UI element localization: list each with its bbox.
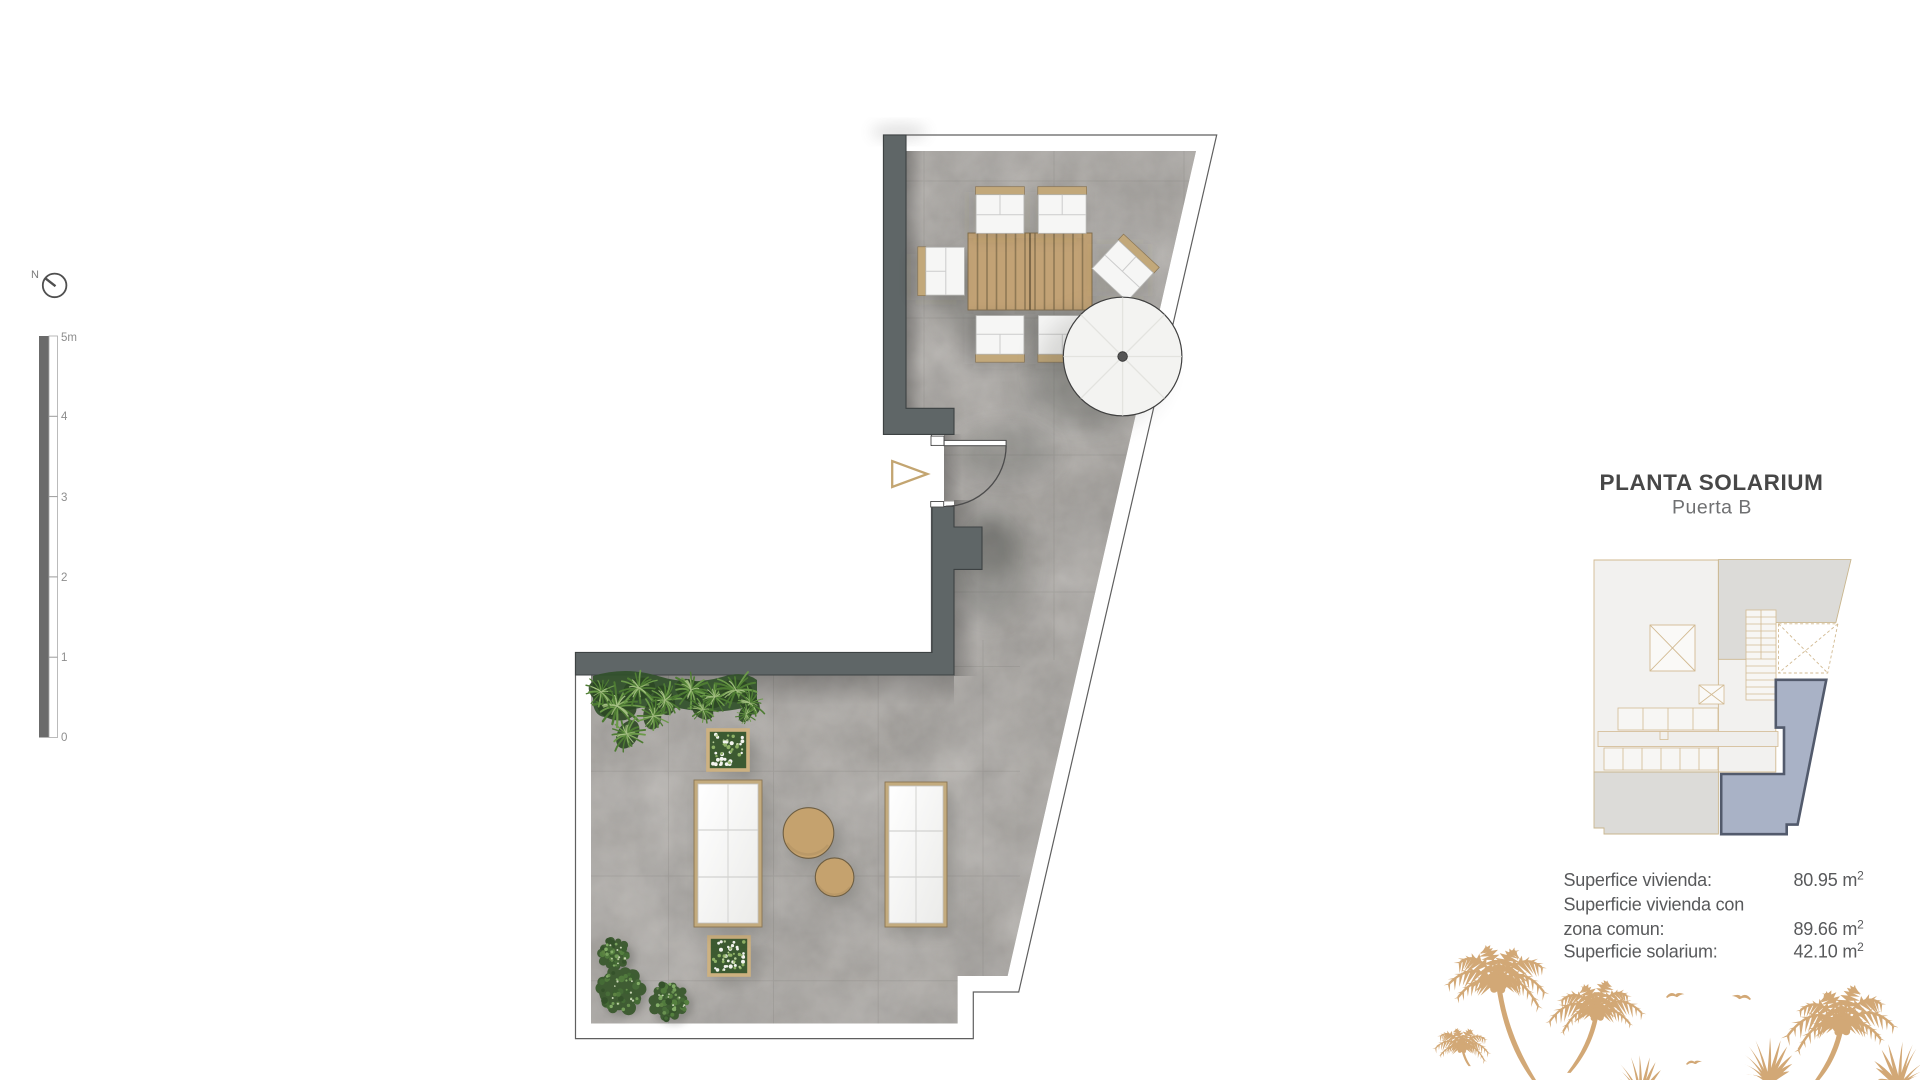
svg-text:2: 2 (61, 572, 67, 584)
svg-text:42.10 m2: 42.10 m2 (1794, 940, 1865, 962)
svg-text:5m: 5m (61, 332, 77, 344)
svg-text:3: 3 (61, 492, 67, 504)
svg-text:80.95 m2: 80.95 m2 (1794, 869, 1865, 891)
svg-text:N: N (31, 269, 39, 281)
svg-text:4: 4 (61, 411, 68, 423)
svg-text:Puerta B: Puerta B (1672, 497, 1752, 519)
svg-text:zona comun:: zona comun: (1564, 919, 1665, 939)
svg-text:PLANTA SOLARIUM: PLANTA SOLARIUM (1600, 470, 1824, 495)
svg-text:1: 1 (61, 652, 67, 664)
svg-text:0: 0 (61, 732, 67, 744)
svg-text:89.66 m2: 89.66 m2 (1794, 918, 1865, 940)
svg-text:Superficie solarium:: Superficie solarium: (1564, 942, 1718, 962)
svg-text:Superficie vivienda con: Superficie vivienda con (1564, 895, 1745, 915)
svg-text:Superfice vivienda:: Superfice vivienda: (1564, 870, 1712, 890)
